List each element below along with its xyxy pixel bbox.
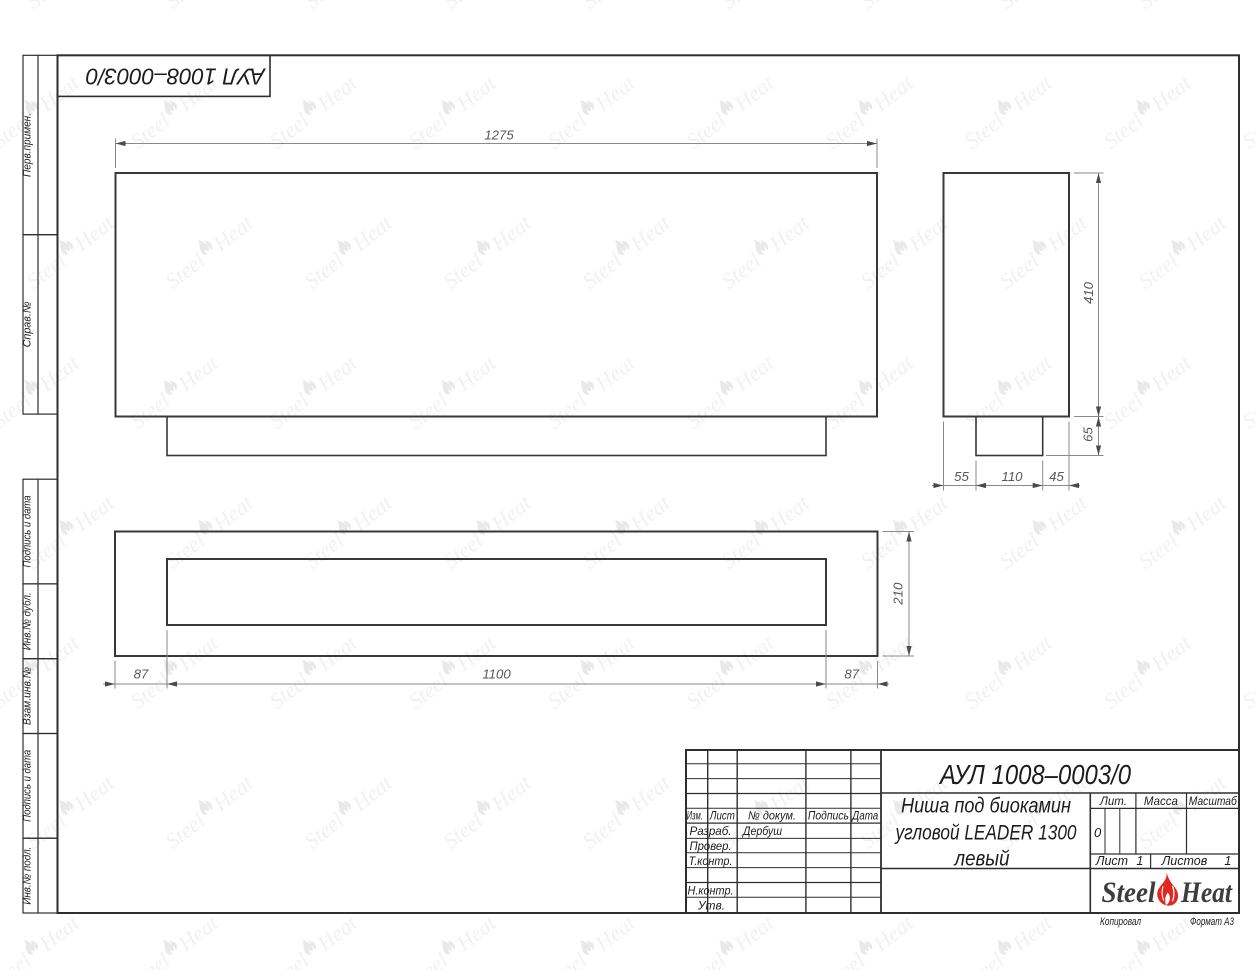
svg-text:Формат А3: Формат А3 [1190,916,1235,928]
svg-text:Взам.инв.№: Взам.инв.№ [22,667,34,725]
svg-text:410: 410 [1081,281,1096,304]
svg-text:Лист: Лист [709,809,735,823]
svg-text:Heat: Heat [1180,876,1233,909]
svg-text:45: 45 [1049,469,1064,484]
svg-text:№ докум.: № докум. [748,809,796,823]
svg-text:Копировал: Копировал [1100,916,1141,928]
svg-text:Изм.: Изм. [687,809,703,823]
svg-text:110: 110 [1001,469,1023,484]
svg-text:Дербуш: Дербуш [741,824,782,838]
svg-text:1: 1 [1136,854,1143,868]
svg-text:Steel: Steel [1102,876,1157,909]
svg-text:Т.контр.: Т.контр. [689,854,733,868]
svg-text:Масса: Масса [1144,796,1178,808]
svg-text:Дата: Дата [851,809,879,823]
svg-text:Разраб.: Разраб. [690,824,732,838]
svg-text:1100: 1100 [482,667,511,682]
svg-text:Перв.примен.: Перв.примен. [22,113,34,177]
svg-text:АУЛ 1008–0003/0: АУЛ 1008–0003/0 [86,64,267,90]
svg-text:65: 65 [1081,427,1096,442]
svg-text:1: 1 [1224,854,1231,868]
svg-text:Масштаб: Масштаб [1189,796,1237,808]
svg-text:Утв.: Утв. [697,899,725,913]
svg-text:Н.контр.: Н.контр. [688,884,734,898]
svg-text:Инв.№ дубл.: Инв.№ дубл. [22,592,34,650]
svg-text:87: 87 [134,667,149,682]
svg-text:АУЛ 1008–0003/0: АУЛ 1008–0003/0 [938,759,1131,790]
svg-text:угловой LEADER 1300: угловой LEADER 1300 [894,822,1077,845]
svg-text:87: 87 [844,667,859,682]
svg-text:210: 210 [891,582,906,606]
svg-text:Ниша под биокамин: Ниша под биокамин [901,795,1071,818]
svg-text:Лист: Лист [1095,854,1128,868]
svg-text:Подпись и дата: Подпись и дата [22,750,34,822]
svg-text:Подпись и дата: Подпись и дата [22,496,34,568]
svg-text:Лит.: Лит. [1099,796,1127,808]
svg-text:Подпись: Подпись [808,809,849,823]
svg-text:левый: левый [954,848,1010,871]
svg-text:Провер.: Провер. [690,839,732,853]
svg-text:1275: 1275 [484,128,514,143]
svg-text:Листов: Листов [1161,854,1208,868]
svg-text:Инв.№ подл.: Инв.№ подл. [22,847,34,905]
svg-text:0: 0 [1094,825,1102,840]
svg-text:55: 55 [954,469,969,484]
svg-text:Справ.№: Справ.№ [22,301,34,347]
